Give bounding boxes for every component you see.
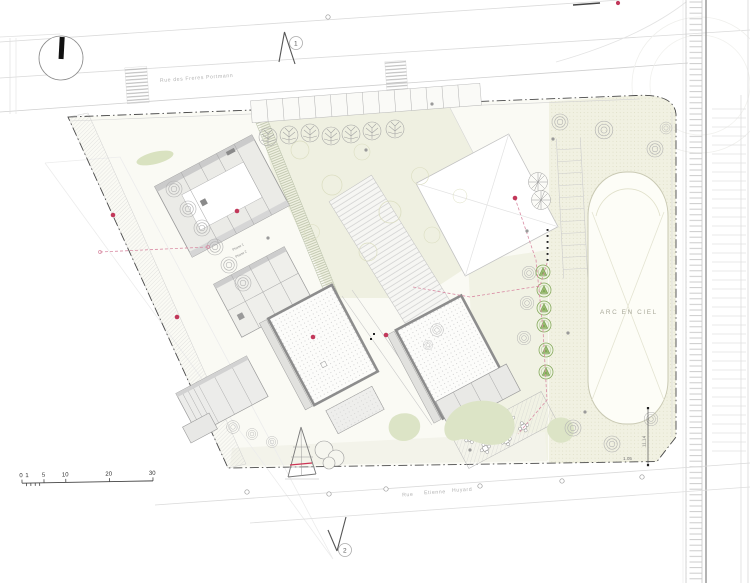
- manhole-icon: [245, 490, 249, 494]
- conifer-tree-icon: [536, 265, 550, 279]
- scale-tick-10: 10: [62, 472, 69, 478]
- street-top-label: Rue des Freres Portmann: [160, 73, 234, 84]
- scale-bar: 0 1 5 10 20 30: [19, 471, 156, 486]
- conifer-tree-icon: [539, 343, 553, 357]
- scale-tick-0: 0: [19, 473, 23, 479]
- scale-tick-5: 5: [42, 473, 46, 479]
- crosswalk-west: [125, 66, 149, 103]
- section-2-number: 2: [343, 548, 347, 555]
- site-area: [45, 95, 676, 559]
- north-indicator: [38, 35, 84, 81]
- street-bottom-word-2: Etienne: [424, 489, 446, 496]
- deciduous-tree-icon: [532, 191, 551, 210]
- stadium-arc-en-ciel: ARC EN CIEL: [588, 172, 668, 424]
- scale-tick-30: 30: [149, 471, 156, 477]
- manhole-icon: [326, 15, 330, 19]
- manhole-icon: [478, 484, 482, 488]
- street-bottom: Rue Etienne Huyard: [155, 463, 750, 523]
- dim-vertical-label: 11.14: [642, 435, 647, 447]
- street-bottom-word-1: Rue: [402, 492, 414, 499]
- site-plan-canvas: Rue des Freres Portmann: [0, 0, 750, 583]
- manhole-icon: [384, 487, 388, 491]
- manhole-icon: [327, 492, 331, 496]
- scale-tick-20: 20: [105, 472, 112, 478]
- manhole-icon: [640, 475, 644, 479]
- scale-tick-1: 1: [25, 473, 29, 479]
- drawing-sheet: Rue des Freres Portmann: [0, 0, 750, 583]
- section-1-number: 1: [294, 41, 298, 48]
- section-marker-2: 2: [328, 517, 352, 557]
- manhole-icon: [560, 479, 564, 483]
- dim-horizontal-label: 1.05: [623, 456, 632, 461]
- tram-track: [686, 0, 702, 583]
- parking-east: [712, 108, 746, 458]
- conifer-tree-icon: [537, 318, 551, 332]
- stadium-label: ARC EN CIEL: [600, 309, 658, 316]
- conifer-tree-icon: [537, 301, 551, 315]
- deciduous-tree-icon: [529, 173, 548, 192]
- street-bottom-word-3: Huyard: [452, 487, 473, 494]
